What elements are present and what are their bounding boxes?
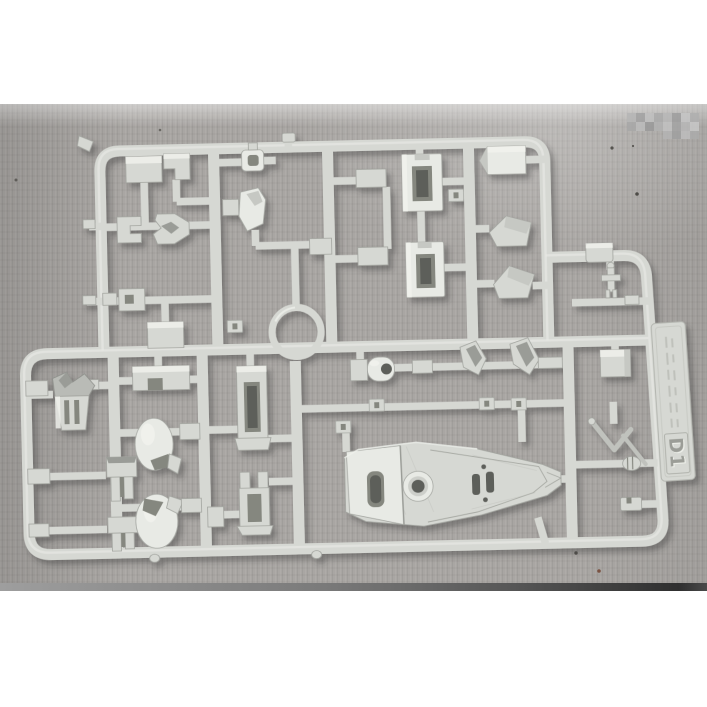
bracket-part [126,153,191,182]
runner-box-part [309,238,331,254]
shin-plate-part [222,188,266,232]
shell-part-1 [135,417,201,474]
box-armor-part [479,146,526,175]
runner-piece-2 [538,357,562,369]
h-frame-elbow [208,507,224,527]
sleeve-armor-part-2 [406,242,445,298]
page-background: D1 D1 [0,0,707,707]
runner-piece-1 [412,360,432,373]
hull-deck-part [344,439,562,528]
shell-part-2 [135,493,202,548]
censored-watermark [627,113,699,139]
cylinder-joint-part [350,357,395,382]
wedge-armor-part-2 [493,266,535,299]
thruster-box-part [600,349,631,377]
claw-part-2 [108,517,140,552]
boot-part [52,372,95,431]
elbow-connector-2 [358,247,388,266]
wedge-armor-part-1 [489,216,532,247]
frame-slot-part [233,366,271,451]
sprue-runner: D1 D1 [19,122,697,565]
elbow-connector-1 [356,169,386,188]
gate-tabs [224,188,526,436]
runner-id-label: D1 [664,437,688,469]
h-frame-part [236,472,273,536]
mini-box-part [586,243,613,263]
sleeve-armor-part-1 [402,154,443,212]
mini-figure-part [601,262,621,298]
claw-part-1 [106,457,137,502]
coil-part [622,456,640,470]
mini-nub-part [625,295,639,304]
intake-fork-part [132,365,190,390]
sprue-svg: D1 D1 [0,0,707,707]
clip-part [620,497,641,510]
